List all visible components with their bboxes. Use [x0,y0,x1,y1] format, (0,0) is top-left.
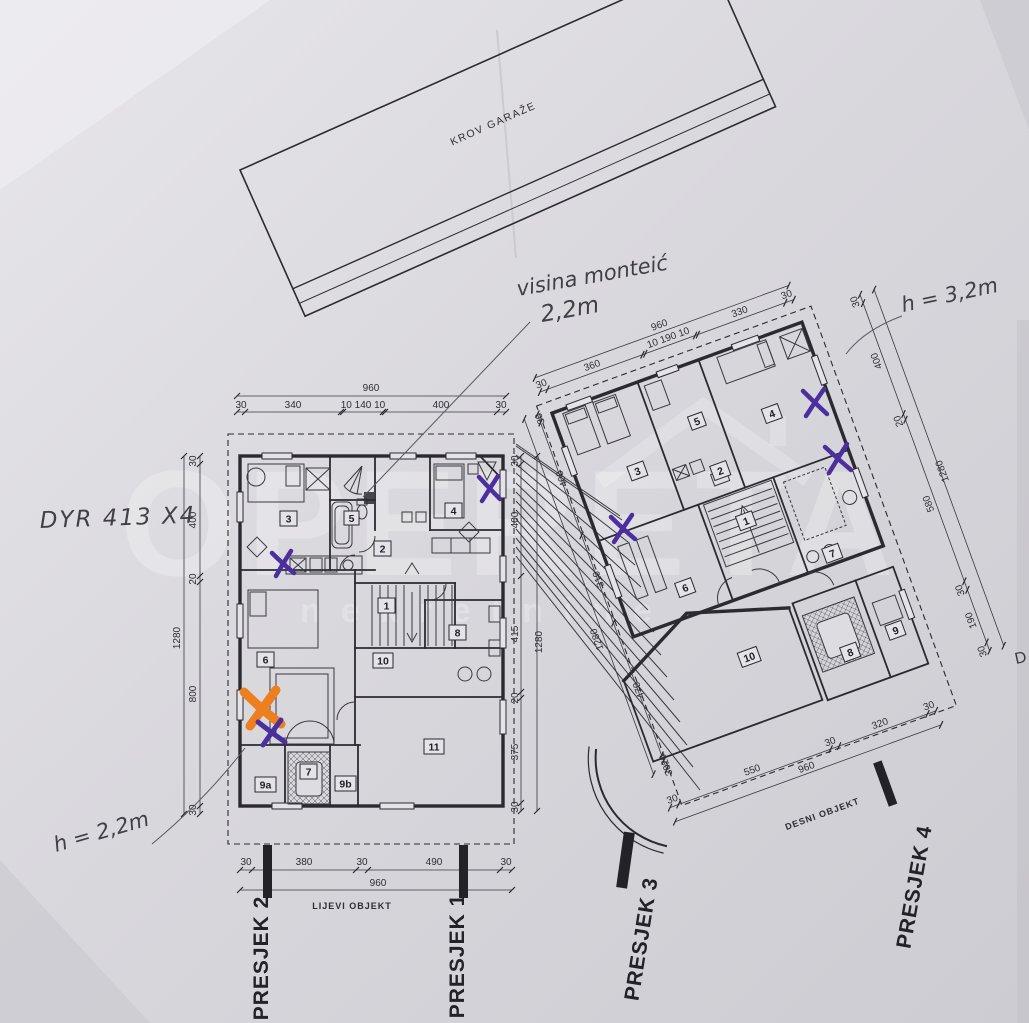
svg-text:10 140 10: 10 140 10 [341,400,386,411]
svg-text:800: 800 [188,685,199,702]
svg-text:8: 8 [455,628,461,640]
room-label: 9a [255,777,276,792]
svg-text:7: 7 [306,767,312,779]
svg-text:30: 30 [510,455,521,467]
svg-text:340: 340 [285,400,302,411]
svg-text:20: 20 [510,692,521,704]
svg-text:2: 2 [380,544,386,556]
svg-text:30: 30 [240,857,252,868]
svg-text:4: 4 [451,506,457,518]
svg-text:1: 1 [384,601,390,613]
svg-text:9a: 9a [260,780,272,792]
svg-text:9b: 9b [339,779,351,791]
svg-text:30: 30 [495,400,507,411]
floor-plan-drawing: KROV GARAŽE OPERETA nekretnine [0,0,1029,1023]
section-label-presjek-1: PRESJEK 1 [446,894,469,1019]
svg-text:375: 375 [510,743,521,760]
room-label: 9b [335,776,356,791]
section-marker-2 [263,845,272,898]
svg-text:5: 5 [349,513,355,525]
svg-text:1280: 1280 [534,630,545,653]
code-note: DYR 413 X4 [39,503,196,534]
svg-text:30: 30 [510,801,521,813]
svg-text:30: 30 [235,400,247,411]
svg-text:20: 20 [188,573,199,585]
svg-text:6: 6 [263,655,269,667]
svg-text:960: 960 [370,878,387,889]
room-label: 10 [373,653,393,668]
room-label: 4 [445,503,462,518]
svg-text:30: 30 [188,455,199,467]
svg-text:415: 415 [510,625,521,642]
room-label: 2 [374,541,391,556]
room-label: 3 [280,511,297,526]
room-label: 5 [344,511,359,525]
scanned-floor-plan: KROV GARAŽE OPERETA nekretnine [0,0,1029,1023]
svg-text:30: 30 [500,857,512,868]
svg-text:400: 400 [510,511,521,528]
room-label: 11 [424,739,444,754]
svg-text:30: 30 [356,857,368,868]
section-label-presjek-2: PRESJEK 2 [250,896,273,1021]
room-label: 1 [378,598,395,613]
svg-text:380: 380 [296,857,313,868]
svg-text:960: 960 [363,383,380,394]
left-object-label: LIJEVI OBJEKT [312,901,392,911]
room-label: 8 [449,625,466,640]
room-label: 7 [300,764,317,779]
svg-text:11: 11 [428,742,439,754]
svg-text:3: 3 [286,514,292,526]
room-label: 6 [257,652,274,667]
svg-text:490: 490 [426,857,443,868]
svg-text:1280: 1280 [172,626,183,649]
svg-text:10: 10 [377,656,389,668]
section-marker-1 [459,845,468,898]
